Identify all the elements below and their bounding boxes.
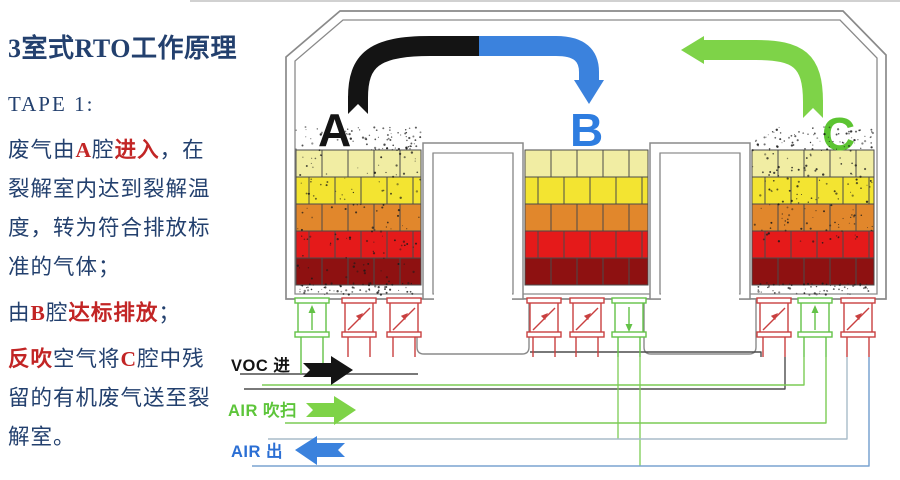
brick	[374, 258, 400, 285]
chamber-b-outlet-drops	[618, 357, 640, 466]
brick	[296, 231, 309, 258]
brick	[856, 150, 874, 177]
brick	[791, 177, 817, 204]
brick	[752, 258, 778, 285]
brick	[335, 177, 361, 204]
brick	[348, 258, 374, 285]
brick	[616, 177, 642, 204]
brick	[551, 204, 577, 231]
brick	[296, 258, 322, 285]
brick	[374, 150, 400, 177]
air-out-upper-pipe	[268, 357, 847, 439]
brick	[856, 258, 874, 285]
brick	[843, 231, 869, 258]
voc-in-label: VOC 进	[231, 356, 290, 375]
brick	[616, 231, 642, 258]
brick	[538, 177, 564, 204]
voc-in-arrow	[303, 356, 353, 385]
brick	[538, 231, 564, 258]
brick	[603, 150, 629, 177]
brick	[296, 177, 309, 204]
brick	[590, 231, 616, 258]
brick	[830, 258, 856, 285]
brick	[400, 204, 421, 231]
brick	[525, 204, 551, 231]
brick	[778, 204, 804, 231]
brick	[387, 231, 413, 258]
air-purge-arrow	[306, 396, 356, 425]
brick	[791, 231, 817, 258]
rto-principle-figure: 3室式RTO工作原理 TAPE 1: 废气由A腔进入，在裂解室内达到裂解温度，转…	[0, 0, 900, 480]
open-valve	[798, 298, 832, 357]
brick	[856, 204, 874, 231]
brick	[564, 177, 590, 204]
air-purge-label: AIR 吹扫	[228, 400, 297, 420]
brick	[804, 258, 830, 285]
brick	[348, 150, 374, 177]
open-valve	[295, 298, 329, 374]
closed-valve	[387, 298, 421, 357]
brick	[765, 231, 791, 258]
brick	[525, 150, 551, 177]
closed-valve	[570, 298, 604, 357]
switch-valves	[295, 298, 875, 374]
brick	[309, 177, 335, 204]
ceramic-brick-beds	[296, 150, 874, 285]
brick	[752, 177, 765, 204]
brick	[400, 258, 421, 285]
chamber-label-b: B	[570, 104, 603, 156]
closed-valve	[342, 298, 376, 357]
brick	[525, 231, 538, 258]
brick	[642, 231, 648, 258]
brick	[830, 204, 856, 231]
brick	[817, 231, 843, 258]
brick	[322, 204, 348, 231]
brick	[843, 177, 869, 204]
brick	[629, 204, 648, 231]
brick	[752, 231, 765, 258]
brick	[525, 177, 538, 204]
brick	[804, 204, 830, 231]
closed-valve	[527, 298, 561, 357]
brick	[335, 231, 361, 258]
brick	[642, 177, 648, 204]
chamber-label-a: A	[318, 104, 351, 156]
brick	[296, 204, 322, 231]
brick	[778, 150, 804, 177]
air-out-label: AIR 出	[231, 441, 283, 461]
brick	[577, 258, 603, 285]
brick	[778, 258, 804, 285]
brick	[413, 231, 421, 258]
brick	[603, 204, 629, 231]
air-out-arrow	[295, 436, 345, 465]
brick	[817, 177, 843, 204]
rto-diagram: A B C VOC 进 AIR 吹扫 AIR 出	[0, 0, 900, 480]
brick	[525, 258, 551, 285]
brick	[564, 231, 590, 258]
brick	[869, 231, 874, 258]
open-valve	[612, 298, 646, 357]
brick	[577, 204, 603, 231]
brick	[752, 204, 778, 231]
closed-valve	[757, 298, 791, 357]
brick	[765, 177, 791, 204]
closed-valve	[841, 298, 875, 357]
brick	[322, 258, 348, 285]
brick	[387, 177, 413, 204]
brick	[551, 258, 577, 285]
brick	[603, 258, 629, 285]
brick	[629, 150, 648, 177]
brick	[590, 177, 616, 204]
brick	[629, 258, 648, 285]
brick	[348, 204, 374, 231]
